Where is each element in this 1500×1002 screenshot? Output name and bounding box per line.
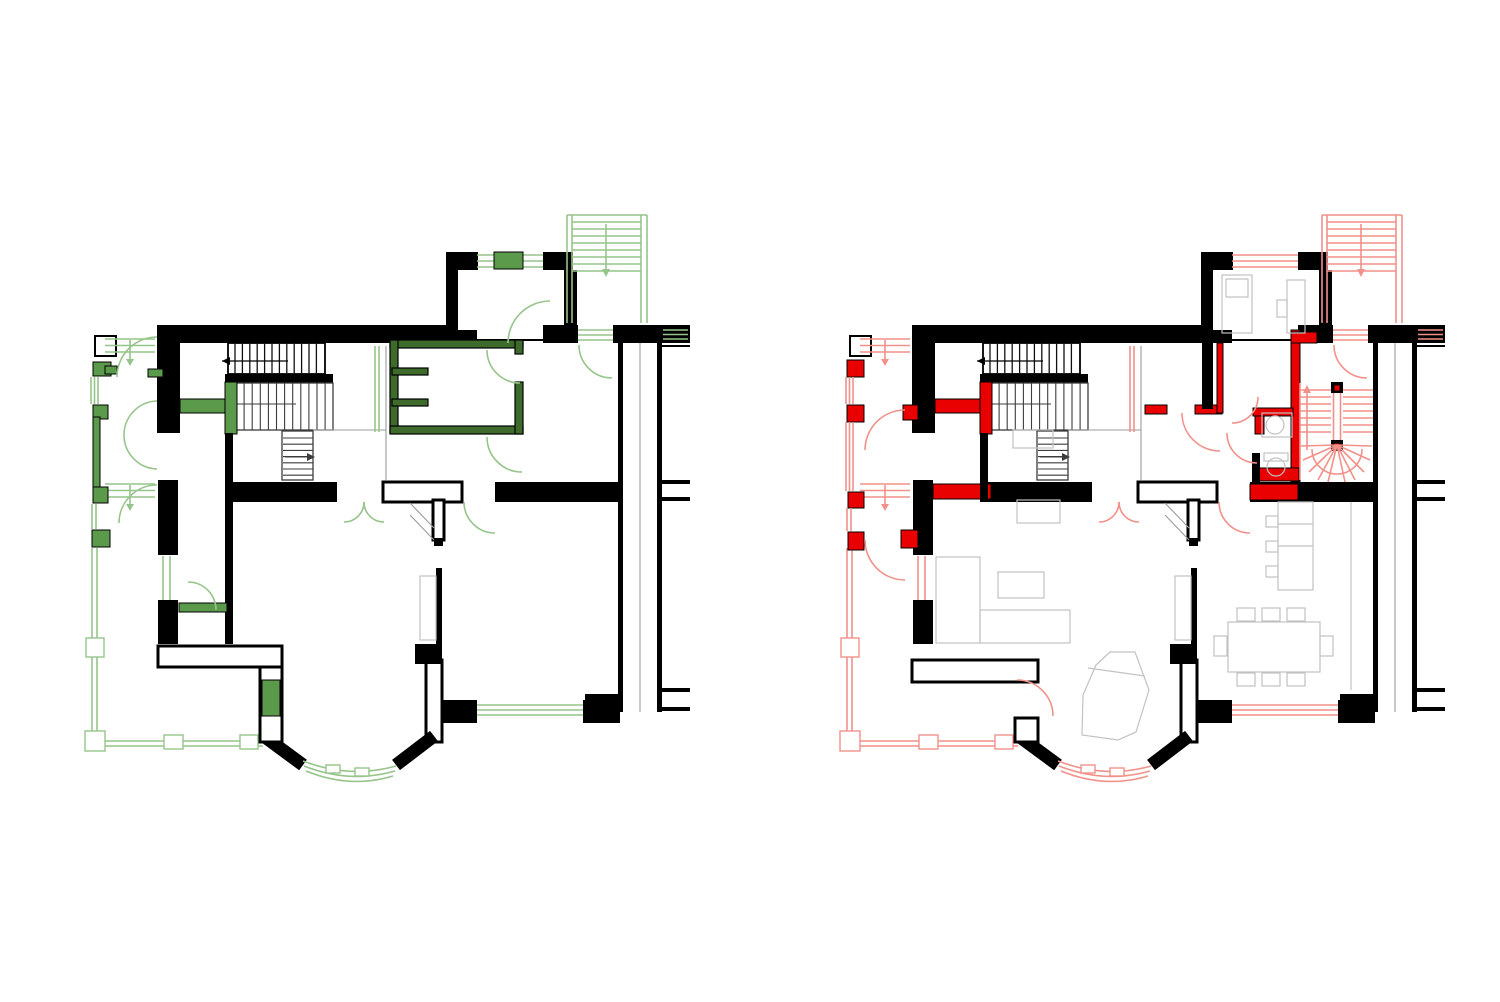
party-wall [657, 343, 662, 712]
middle-wall [495, 482, 618, 502]
bay-wall [1015, 718, 1038, 742]
chimney [420, 576, 436, 640]
bumpout-wall [1319, 270, 1332, 330]
highlight-wall [92, 530, 110, 547]
closet-line [410, 515, 434, 540]
floorplan-left-green [85, 215, 690, 781]
door-swing [1232, 397, 1258, 423]
bay-wall [1170, 644, 1197, 664]
highlight-pier [847, 405, 864, 422]
highlight-wall [148, 369, 163, 377]
bar-stool [1266, 566, 1278, 577]
middle-wall [980, 482, 1092, 502]
grand-piano [1088, 668, 1145, 676]
wall-cap [434, 538, 443, 546]
bumpout-wall [446, 252, 478, 270]
direction-arrow [1062, 453, 1070, 461]
dining-chair [1320, 636, 1333, 656]
sink [1266, 416, 1284, 434]
highlight-pier [847, 360, 864, 377]
bumpout-wall [564, 270, 577, 330]
winder-tread [1337, 445, 1370, 460]
bay-mullion [326, 765, 340, 773]
door-swing [579, 345, 612, 378]
porch-post [995, 735, 1013, 749]
winder-tread [1337, 445, 1372, 446]
bar-stool [1266, 541, 1278, 552]
door-swing [1182, 413, 1220, 451]
highlight-pier [848, 492, 864, 508]
dining-chair [1262, 608, 1280, 621]
highlight-room-wall [392, 368, 428, 375]
highlight-pier [901, 530, 918, 548]
porch-post [164, 735, 183, 749]
highlight-wall [980, 382, 992, 434]
door-swing [464, 502, 495, 533]
bathroom-wall [1255, 468, 1299, 481]
dining-chair [1214, 636, 1227, 656]
door-swing [1119, 502, 1139, 522]
door-swing [124, 435, 157, 469]
middle-wall [225, 482, 337, 502]
highlight-room-wall [390, 426, 523, 434]
highlight-window [494, 252, 523, 269]
highlight-wall [225, 382, 237, 434]
middle-wall [383, 482, 462, 502]
dining-chair [1237, 608, 1255, 621]
bay-mullion [1081, 765, 1095, 773]
neighbor-wall [1417, 497, 1445, 501]
porch-post [919, 735, 938, 749]
bumpout-wall [446, 270, 458, 330]
dining-chair [1287, 608, 1305, 621]
plans-canvas [0, 0, 1500, 1002]
sofa [936, 557, 980, 643]
structure-layer [95, 252, 690, 765]
highlight-room-wall [515, 340, 523, 354]
door-swing [1017, 680, 1053, 716]
bumpout-wall [543, 252, 573, 270]
bumpout-wall [543, 330, 577, 343]
dining-chair [1237, 673, 1255, 686]
interior-wall-stub [1188, 500, 1199, 540]
porch-post [85, 731, 105, 751]
bar-stool [1266, 516, 1278, 527]
highlight-wall [262, 680, 280, 716]
porch-post [840, 731, 860, 751]
structure-layer [850, 252, 1445, 765]
highlight-pier [903, 405, 918, 420]
stair-wall [225, 374, 333, 383]
bay-wall [415, 644, 442, 664]
bay-wall [1181, 660, 1197, 742]
door-swing [344, 502, 364, 522]
interior-wall-stub [433, 500, 444, 540]
neighbor-wall [662, 688, 690, 692]
interior-wall [1202, 343, 1213, 409]
neighbor-wall [1417, 688, 1445, 692]
hall-cabinet [1013, 430, 1053, 448]
door-swing [1099, 502, 1119, 522]
bay-angled-wall [396, 736, 434, 765]
wall-cap [1189, 538, 1198, 546]
bumpout-wall [1201, 270, 1213, 330]
toilet [1264, 453, 1288, 461]
neighbor-wall [662, 497, 690, 501]
highlight-room-wall [392, 399, 428, 406]
direction-arrow [1357, 269, 1365, 277]
door-swing [1219, 502, 1250, 533]
interior-wall [157, 343, 180, 433]
highlight-wall [179, 603, 227, 612]
neighbor-wall [662, 480, 690, 484]
door-swing [487, 350, 520, 383]
bay-mullion [355, 768, 369, 776]
floorplan-right-red [840, 215, 1445, 781]
bay-angled-wall [1151, 736, 1189, 765]
door-swing [487, 437, 522, 472]
floor-plan-comparison-page [0, 0, 1500, 1002]
direction-arrow [126, 359, 134, 366]
bathroom-wall [1253, 408, 1293, 416]
door-swing [865, 540, 905, 580]
window-jamb [1197, 700, 1232, 723]
direction-arrow [126, 504, 134, 511]
desk-chair [1277, 300, 1287, 317]
chimney [1175, 576, 1191, 640]
highlight-wall [93, 417, 100, 489]
bay-wall [426, 660, 442, 742]
grand-piano [1082, 652, 1149, 740]
highlight-pier [848, 532, 864, 550]
door-swing [124, 401, 157, 435]
direction-arrow [881, 504, 889, 511]
winder-tread [1301, 445, 1337, 446]
neighbor-wall [1417, 707, 1445, 711]
highlight-wall [93, 487, 108, 503]
dining-chair [1287, 673, 1305, 686]
sofa [980, 610, 1070, 643]
porch-post [240, 735, 258, 749]
closet-line [1165, 515, 1189, 540]
bed-pillow [1226, 279, 1248, 297]
bumpout-wall [1201, 330, 1232, 343]
direction-arrow [881, 359, 889, 366]
neighbor-wall [662, 707, 690, 711]
coffee-table [998, 572, 1044, 598]
bay-mullion [1110, 768, 1124, 776]
lower-wall [158, 646, 282, 667]
left-wall [158, 480, 178, 555]
bathroom-wall [1252, 453, 1260, 482]
porch-post [841, 638, 859, 657]
highlight-wall [1217, 343, 1223, 413]
party-wall [618, 343, 623, 712]
neighbor-wall [1417, 480, 1445, 484]
winder-tread [1337, 445, 1355, 480]
highlight-room-wall [390, 340, 398, 433]
direction-arrow [222, 357, 230, 365]
bumpout-wall [1201, 252, 1233, 270]
party-wall [1412, 343, 1417, 712]
door-swing [1334, 345, 1367, 378]
dining-chair [1262, 673, 1280, 686]
direction-arrow [1303, 385, 1311, 393]
bumpout-wall [1298, 252, 1328, 270]
window-jamb [583, 700, 620, 723]
direction-arrow [602, 269, 610, 277]
interior-wall [1191, 568, 1197, 645]
stair-wall [980, 374, 1088, 383]
left-wall [913, 600, 933, 644]
porch-post [86, 638, 104, 657]
closet-line [410, 503, 434, 528]
highlight-room-wall [515, 382, 523, 434]
window-jamb [1338, 700, 1375, 723]
direction-arrow [307, 453, 315, 461]
highlight-wall [1250, 484, 1298, 500]
left-wall [158, 600, 178, 644]
sideboard [1017, 500, 1060, 523]
dining-table [1228, 622, 1320, 672]
highlight-wall [1291, 332, 1317, 343]
direction-arrow [977, 357, 985, 365]
closet-line [1165, 503, 1189, 528]
window-jamb [442, 700, 477, 723]
highlight-wall [105, 366, 117, 374]
door-swing [865, 410, 905, 450]
highlight-wall [1145, 405, 1167, 414]
party-wall [1373, 343, 1378, 712]
interior-wall [980, 433, 988, 501]
lower-wall [912, 660, 1038, 682]
exterior-wall-top [912, 325, 1212, 343]
winder-tread [1318, 445, 1337, 480]
door-swing [364, 502, 384, 522]
interior-wall [436, 568, 442, 645]
winder-tread [1303, 445, 1337, 460]
highlight-wall [1291, 330, 1300, 482]
stair-newel [1334, 385, 1340, 391]
highlight-room-wall [390, 340, 523, 348]
middle-wall [1138, 482, 1217, 502]
